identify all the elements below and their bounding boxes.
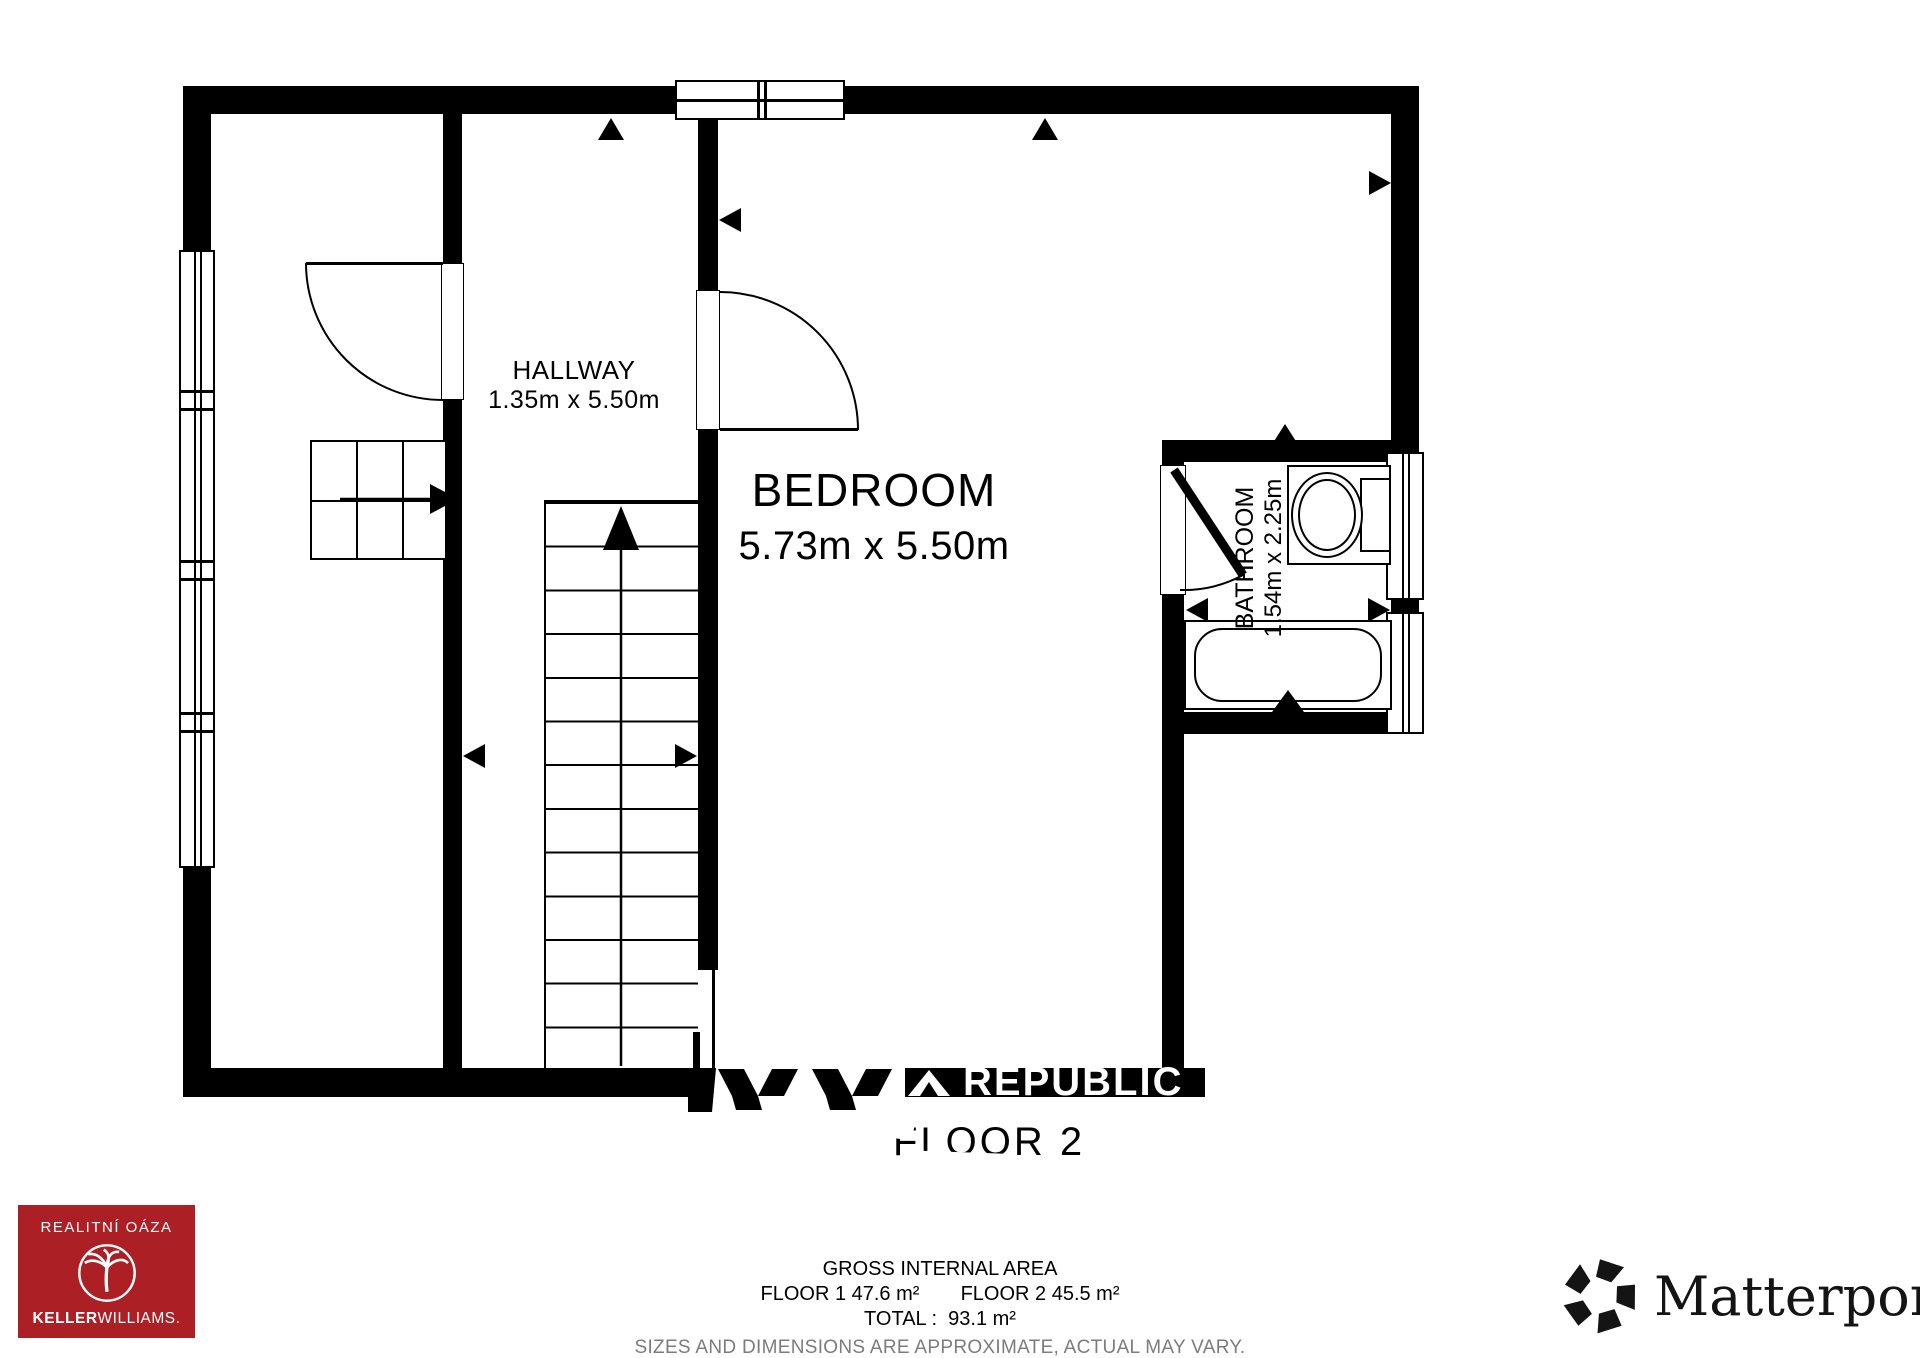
disclaimer: SIZES AND DIMENSIONS ARE APPROXIMATE, AC… <box>440 1337 1440 1358</box>
matterport-wordmark: Matterport® <box>1654 1265 1920 1328</box>
room-label-hallway: HALLWAY 1.35m x 5.50m <box>474 356 674 415</box>
staircase-main <box>544 500 698 1068</box>
marker-triangle-up-icon <box>1032 118 1058 140</box>
watermark-republic: REPUBLIC <box>963 1066 1183 1099</box>
door-bedroom <box>720 292 858 431</box>
agency-title: REALITNÍ OÁZA <box>40 1219 172 1236</box>
matterport-text: Matterport <box>1654 1265 1920 1328</box>
wall-hallway-left-upper <box>443 114 462 263</box>
wall-bathroom-left-lower <box>1162 590 1184 1097</box>
footer-area-summary: GROSS INTERNAL AREA FLOOR 1 47.6 m² FLOO… <box>440 1258 1440 1358</box>
gross-area-title: GROSS INTERNAL AREA <box>440 1258 1440 1281</box>
bathroom-dimensions: 1.54m x 2.25m <box>1260 448 1289 668</box>
floor-areas-line: FLOOR 1 47.6 m² FLOOR 2 45.5 m² <box>440 1283 1440 1306</box>
door-jamb-left-room <box>441 263 464 400</box>
window-right-upper <box>1386 452 1424 600</box>
brand-bold: KELLER <box>33 1310 98 1327</box>
agency-brand: KELLERWILLIAMS. <box>33 1310 181 1328</box>
door-jamb-bedroom <box>696 290 720 430</box>
marker-triangle-left-icon <box>1186 598 1208 622</box>
floor2-area: FLOOR 2 45.5 m² <box>961 1283 1120 1306</box>
wall-hallway-right-upper <box>698 114 718 290</box>
bedroom-dimensions: 5.73m x 5.50m <box>674 523 1074 569</box>
floor-label: FLOOR 2 <box>893 1120 1085 1165</box>
window-top <box>675 80 845 120</box>
matterport-logo: Matterport® <box>1560 1256 1920 1336</box>
marker-triangle-up-icon <box>598 118 624 140</box>
window-left-strip <box>179 250 215 868</box>
matterport-pinwheel-icon <box>1560 1256 1640 1336</box>
wall-bathroom-bottom <box>1162 712 1419 734</box>
bathroom-name: BATHROOM <box>1230 448 1260 668</box>
floor-plan-page: HALLWAY 1.35m x 5.50m BEDROOM 5.73m x 5.… <box>0 0 1920 1358</box>
hallway-name: HALLWAY <box>474 356 674 386</box>
room-label-bedroom: BEDROOM 5.73m x 5.50m <box>674 464 1074 569</box>
stair-edge-line <box>712 970 715 1068</box>
brand-light: WILLIAMS. <box>98 1310 181 1327</box>
toilet-cistern <box>1360 478 1391 552</box>
floor-label-erosion <box>888 1114 916 1140</box>
hallway-dimensions: 1.35m x 5.50m <box>474 386 674 415</box>
staircase-winder <box>310 440 447 560</box>
total-area: TOTAL : 93.1 m² <box>440 1308 1440 1331</box>
floor1-area: FLOOR 1 47.6 m² <box>761 1283 920 1306</box>
marker-triangle-left-icon <box>463 744 485 768</box>
door-jamb-bathroom <box>1160 465 1186 595</box>
marker-triangle-left-icon <box>719 208 741 232</box>
door-left-room <box>306 262 443 400</box>
agency-logo: REALITNÍ OÁZA KELLERWILLIAMS. <box>18 1205 195 1338</box>
room-label-bathroom: BATHROOM 1.54m x 2.25m <box>1230 448 1294 668</box>
toilet-bowl-inner <box>1298 479 1356 551</box>
bedroom-name: BEDROOM <box>674 464 1074 517</box>
palm-tree-icon <box>76 1242 138 1304</box>
marker-triangle-right-icon <box>1369 171 1391 195</box>
